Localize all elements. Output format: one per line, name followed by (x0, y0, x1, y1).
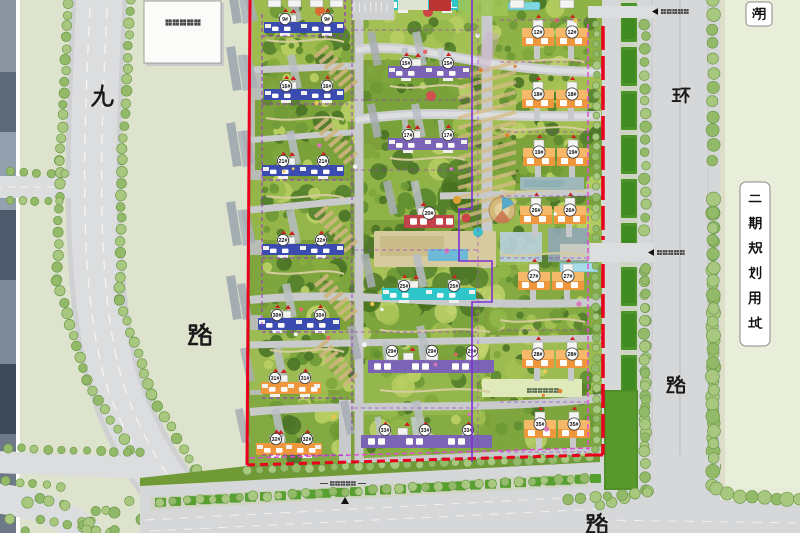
svg-text:15#: 15# (444, 61, 453, 67)
svg-text:26#: 26# (532, 208, 541, 214)
svg-text:32#: 32# (272, 437, 281, 443)
svg-text:27#: 27# (530, 274, 539, 280)
svg-text:9#: 9# (282, 17, 288, 23)
svg-text:30#: 30# (273, 313, 282, 319)
svg-text:35#: 35# (570, 422, 579, 428)
svg-text:9#: 9# (324, 17, 330, 23)
svg-text:12#: 12# (534, 30, 543, 36)
svg-text:28#: 28# (568, 352, 577, 358)
svg-text:18#: 18# (534, 92, 543, 98)
svg-text:29#: 29# (428, 349, 437, 355)
svg-text:27#: 27# (564, 274, 573, 280)
svg-text:22#: 22# (279, 238, 288, 244)
svg-text:33#: 33# (381, 428, 390, 434)
svg-text:20#: 20# (425, 211, 434, 217)
svg-text:26#: 26# (566, 208, 575, 214)
svg-text:19#: 19# (535, 150, 544, 156)
svg-text:33#: 33# (464, 428, 473, 434)
svg-text:18#: 18# (568, 92, 577, 98)
svg-text:19#: 19# (569, 150, 578, 156)
svg-text:31#: 31# (301, 376, 310, 382)
svg-text:16#: 16# (323, 84, 332, 90)
svg-text:31#: 31# (271, 376, 280, 382)
svg-text:32#: 32# (303, 437, 312, 443)
svg-text:17#: 17# (444, 133, 453, 139)
svg-text:17#: 17# (404, 133, 413, 139)
svg-text:30#: 30# (316, 313, 325, 319)
svg-text:25#: 25# (400, 284, 409, 290)
svg-text:28#: 28# (534, 352, 543, 358)
svg-text:21#: 21# (319, 159, 328, 165)
svg-text:21#: 21# (279, 159, 288, 165)
svg-text:33#: 33# (421, 428, 430, 434)
svg-text:25#: 25# (450, 284, 459, 290)
svg-text:35#: 35# (536, 422, 545, 428)
svg-text:12#: 12# (568, 30, 577, 36)
svg-text:16#: 16# (282, 84, 291, 90)
svg-text:29#: 29# (388, 349, 397, 355)
svg-text:15#: 15# (402, 61, 411, 67)
svg-text:22#: 22# (317, 238, 326, 244)
